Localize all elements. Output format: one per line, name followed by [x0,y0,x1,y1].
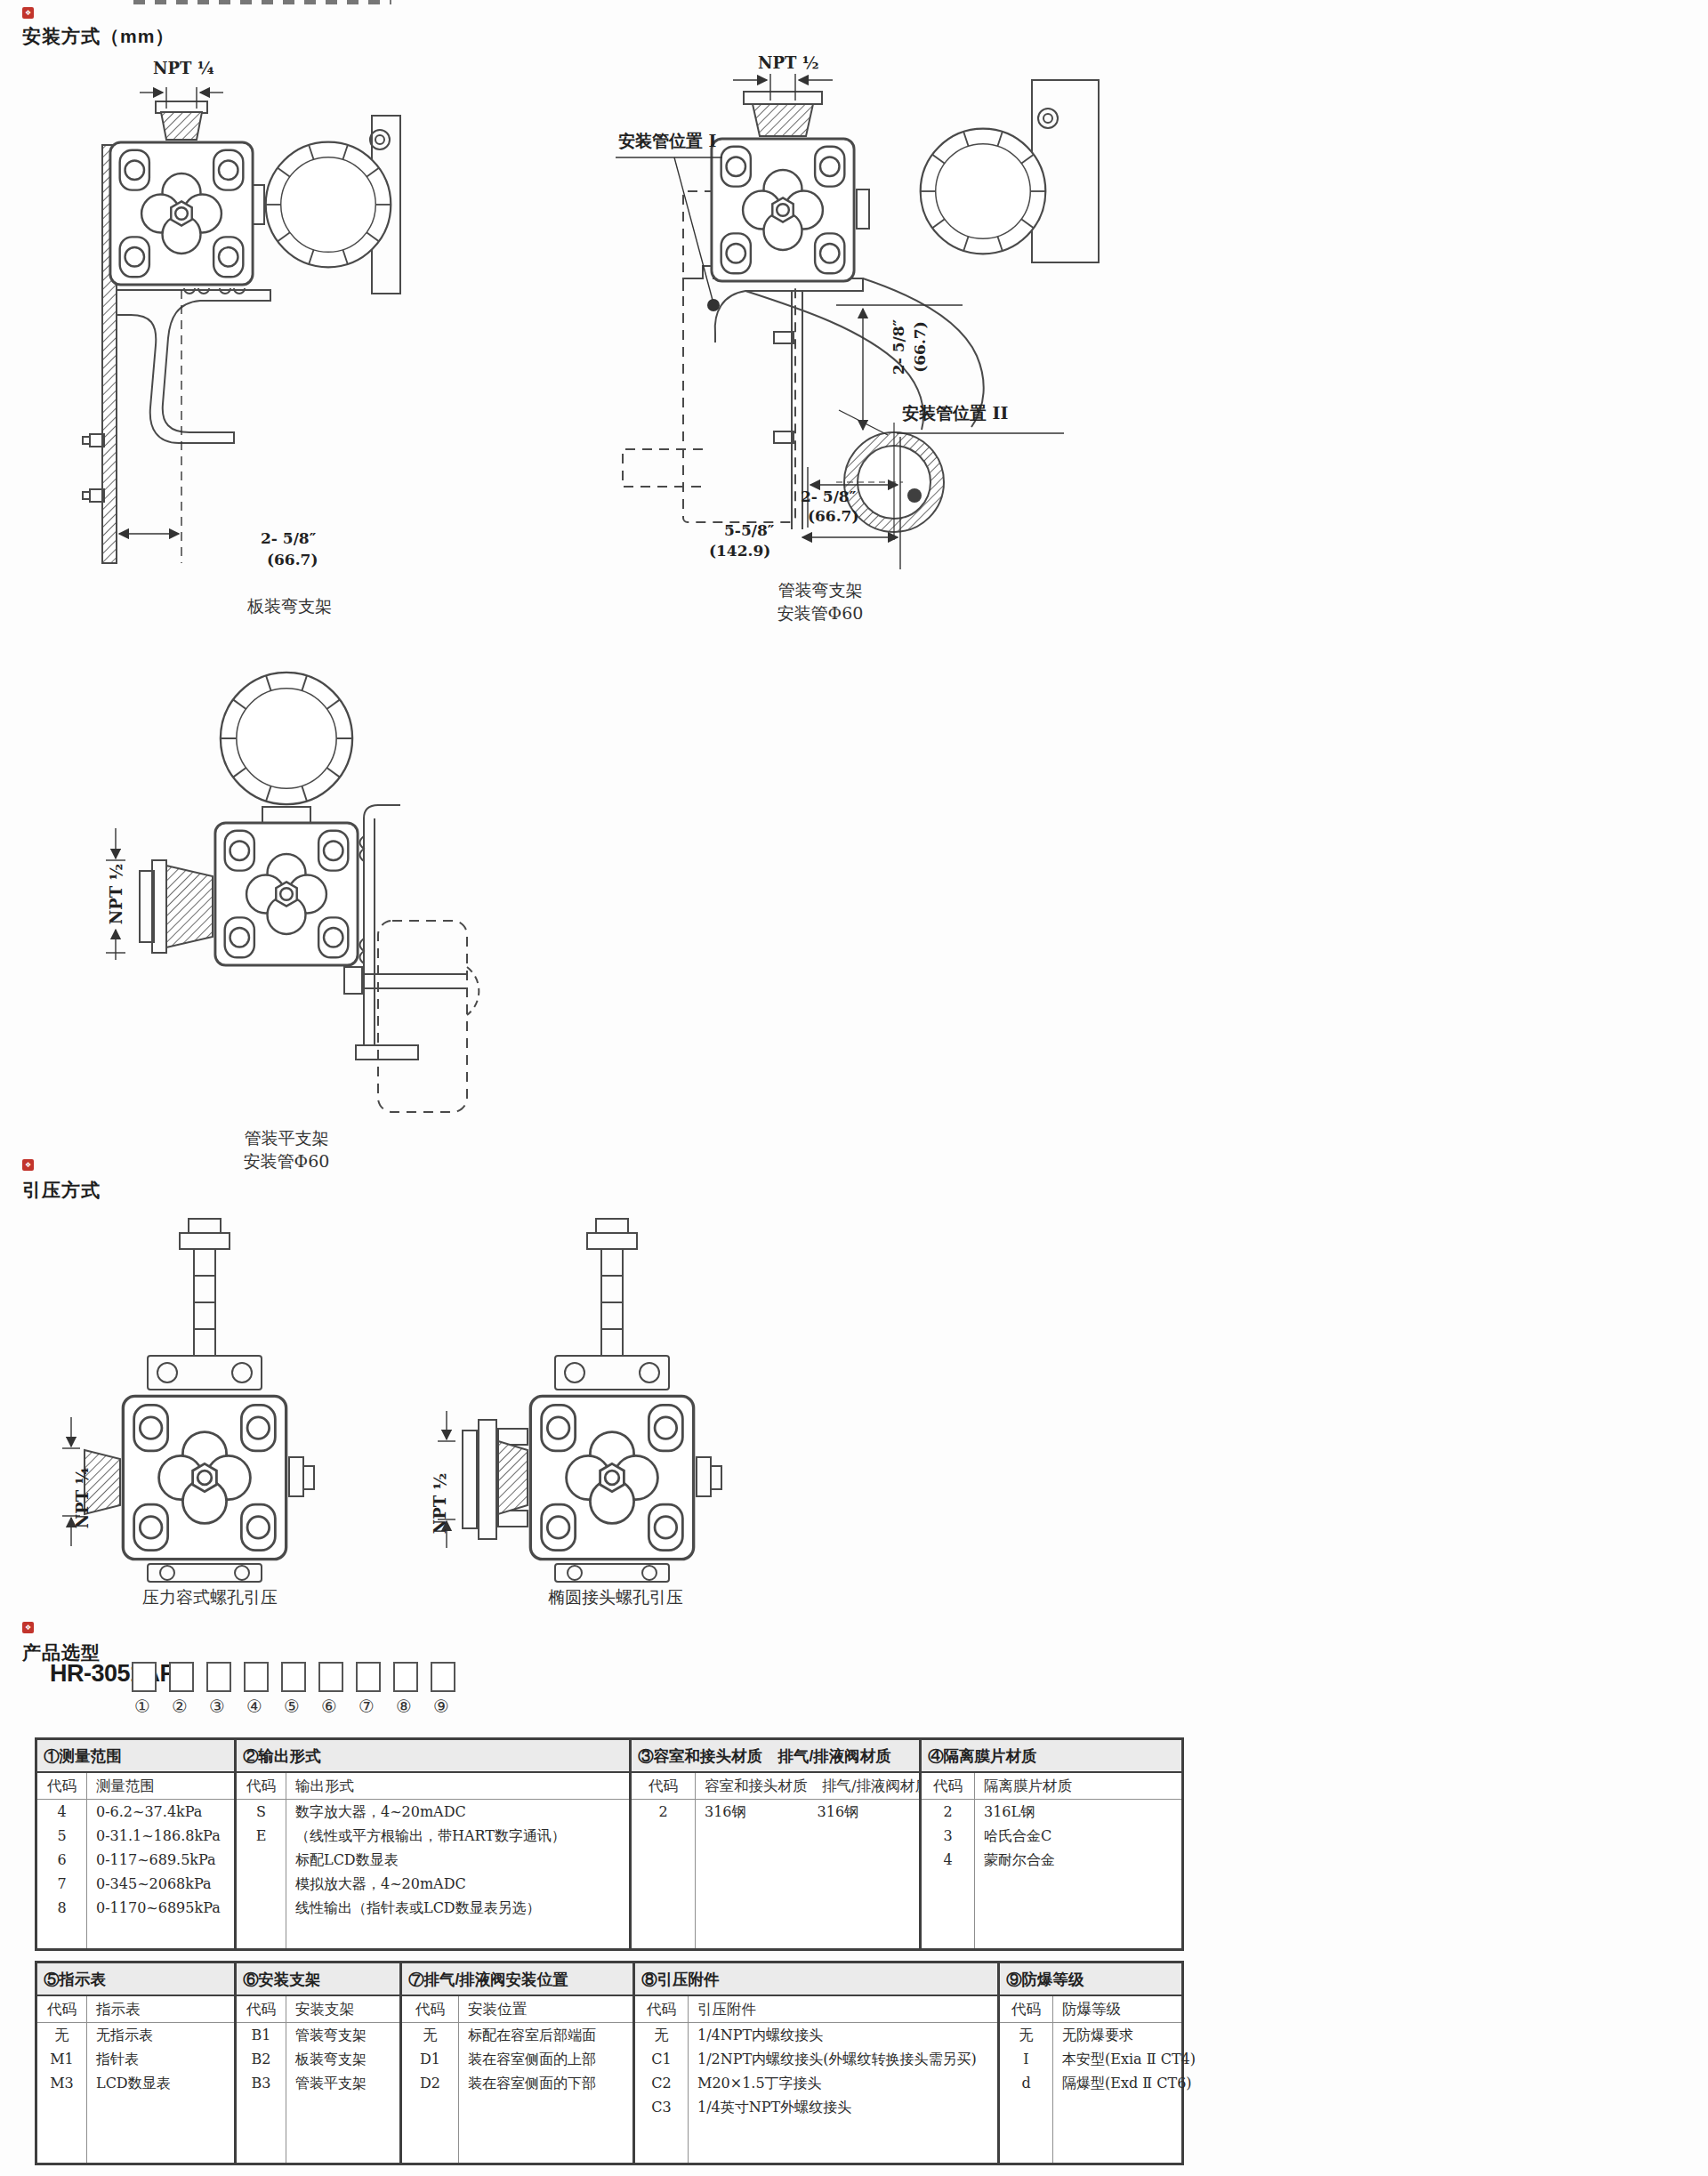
spec-section-title: ⑦排气/排液阀安装位置 [402,1963,632,1996]
section-marker-icon: ❖ [22,1622,34,1633]
value-cell: 线性输出（指针表或LCD数显表另选） [295,1896,629,1920]
code-cell: 无 [635,2023,688,2047]
value-cell: 隔爆型(Exd Ⅱ CT6) [1062,2071,1196,2095]
value-cell: 蒙耐尔合金 [984,1848,1181,1872]
value-cell: LCD数显表 [96,2071,234,2095]
drawing-pipe-flat-bracket [93,654,512,1125]
value-cell: 数字放大器，4~20mADC [295,1800,629,1824]
code-cell: 2 [632,1800,695,1824]
caption-line: 安装管Φ60 [758,601,882,625]
model-code-box-4 [244,1662,269,1692]
value-cell: （线性或平方根输出，带HART数字通讯） [295,1824,629,1848]
value-cell: 0-6.2~37.4kPa [96,1800,234,1824]
section-marker-icon: ❖ [22,7,34,19]
dim-vertical-label: 2- 5/8″ (66.7) [888,319,931,375]
spec-table-band-1: ①测量范围代码测量范围456780-6.2~37.4kPa0-31.1~186.… [35,1737,1184,1951]
dim-label: 2- 5/8″ [801,488,856,505]
spec-section-title: ⑤指示表 [37,1963,234,1996]
position-number: ⑦ [354,1696,379,1717]
npt-label: NPT ¼ [153,59,213,77]
model-code-box-1 [132,1662,157,1692]
value-column-header: 指示表 [87,1996,234,2022]
value-cell: 0-31.1~186.8kPa [96,1824,234,1848]
caption-line: 管装平支架 [229,1126,344,1149]
code-cell: C3 [635,2095,688,2119]
code-cell: 无 [402,2023,458,2047]
code-cell: B1 [237,2023,286,2047]
position-number: ② [167,1696,192,1717]
code-cells: B1B2B3 [237,2023,286,2163]
value-cell: 管装弯支架 [295,2023,399,2047]
pipe-position-2-label: 安装管位置 II [902,402,1008,425]
drawing-caption: 压力容式螺孔引压 [142,1585,278,1608]
value-cell: 板装弯支架 [295,2047,399,2071]
code-cells: 45678 [37,1800,87,1948]
code-cell: B2 [237,2047,286,2071]
value-column-header: 隔离膜片材质 [975,1773,1181,1799]
code-column-header: 代码 [37,1773,87,1799]
value-column-header: 安装支架 [286,1996,399,2022]
value-column-header: 测量范围 [87,1773,234,1799]
spec-section-title: ③容室和接头材质 排气/排液阀材质 [632,1740,919,1773]
code-cell: 4 [37,1800,86,1824]
spec-section-title: ②输出形式 [237,1740,629,1773]
code-cell: 8 [37,1896,86,1920]
drawing-chamber-tap [53,1217,356,1584]
value-cells: 数字放大器，4~20mADC（线性或平方根输出，带HART数字通讯）标配LCD数… [286,1800,629,1948]
code-column-header: 代码 [237,1773,286,1799]
value-cell: 模拟放大器，4~20mADC [295,1872,629,1896]
code-cell: C2 [635,2071,688,2095]
position-number: ① [130,1696,155,1717]
model-code-box-2 [169,1662,194,1692]
code-cells: 无D1D2 [402,2023,459,2163]
value-cell: 管装平支架 [295,2071,399,2095]
npt-label: NPT ½ [107,864,125,924]
value-cells: 无防爆要求本安型(Exia Ⅱ CT4)隔爆型(Exd Ⅱ CT6) [1053,2023,1196,2163]
value-cell: M20×1.5丁字接头 [697,2071,997,2095]
section-marker-icon: ❖ [22,1159,34,1171]
spec-section: ②输出形式代码输出形式SE数字放大器，4~20mADC（线性或平方根输出，带HA… [237,1740,632,1948]
code-cell: 2 [922,1800,974,1824]
value-cells: 无指示表指针表LCD数显表 [87,2023,234,2163]
spec-section: ⑦排气/排液阀安装位置代码安装位置无D1D2标配在容室后部端面装在容室侧面的上部… [402,1963,635,2163]
drawing-caption: 管装弯支架 安装管Φ60 [758,578,882,625]
code-cells: 无M1M3 [37,2023,87,2163]
value-cell: 1/4英寸NPT外螺纹接头 [697,2095,997,2119]
value-cell: 本安型(Exia Ⅱ CT4) [1062,2047,1196,2071]
position-number: ⑤ [279,1696,304,1717]
spec-section: ①测量范围代码测量范围456780-6.2~37.4kPa0-31.1~186.… [37,1740,237,1948]
spec-section-title: ①测量范围 [37,1740,234,1773]
position-number: ⑧ [391,1696,416,1717]
pipe-position-1-label: 安装管位置 I [618,130,717,153]
npt-label: NPT ½ [431,1473,449,1534]
value-cells: 管装弯支架板装弯支架管装平支架 [286,2023,399,2163]
model-code-box-8 [393,1662,418,1692]
value-cell: 哈氏合金C [984,1824,1181,1848]
code-cells: 无C1C2C3 [635,2023,689,2163]
caption-line: 管装弯支架 [758,578,882,601]
value-cell: 0-1170~6895kPa [96,1896,234,1920]
caption-line: 安装管Φ60 [229,1149,344,1173]
value-cells: 316L钢哈氏合金C蒙耐尔合金 [975,1800,1181,1948]
value-cells: 1/4NPT内螺纹接头1/2NPT内螺纹接头(外螺纹转换接头需另买)M20×1.… [689,2023,997,2163]
value-cells: 316钢 316钢 [696,1800,919,1948]
position-number: ④ [242,1696,267,1717]
code-cell: B3 [237,2071,286,2095]
value-cells: 标配在容室后部端面装在容室侧面的上部装在容室侧面的下部 [459,2023,632,2163]
drawing-caption: 管装平支架 安装管Φ60 [229,1126,344,1173]
code-column-header: 代码 [402,1996,459,2022]
value-column-header: 安装位置 [459,1996,632,2022]
spec-section: ⑤指示表代码指示表无M1M3无指示表指针表LCD数显表 [37,1963,237,2163]
clipped-previous-row [133,0,391,4]
code-cell: 3 [922,1824,974,1848]
value-cell: 标配在容室后部端面 [468,2023,632,2047]
code-cell: I [1000,2047,1052,2071]
code-column-header: 代码 [37,1996,87,2022]
model-code-box-5 [281,1662,306,1692]
code-cells: 无Id [1000,2023,1053,2163]
drawing-oval-tap [427,1217,765,1584]
code-cell: 6 [37,1848,86,1872]
model-code-box-9 [431,1662,455,1692]
value-cell: 0-345~2068kPa [96,1872,234,1896]
position-number: ⑨ [429,1696,454,1717]
dim-label-mm: (66.7) [909,319,931,375]
code-cell: 4 [922,1848,974,1872]
model-code-box-3 [206,1662,231,1692]
code-cell: D1 [402,2047,458,2071]
spec-section: ③容室和接头材质 排气/排液阀材质代码容室和接头材质 排气/排液阀材质2316钢… [632,1740,922,1948]
code-cells: 2 [632,1800,696,1948]
code-cell: S [237,1800,286,1824]
code-cell: D2 [402,2071,458,2095]
spec-section: ④隔离膜片材质代码隔离膜片材质234316L钢哈氏合金C蒙耐尔合金 [922,1740,1181,1948]
code-cell: E [237,1824,286,1848]
drawing-caption: 板装弯支架 [247,594,332,617]
value-column-header: 防爆等级 [1053,1996,1181,2022]
dim-label-mm: (66.7) [808,507,859,525]
code-cell: 7 [37,1872,86,1896]
drawing-caption: 椭圆接头螺孔引压 [548,1585,683,1608]
model-code-boxes: ①②③④⑤⑥⑦⑧⑨ [132,1662,594,1717]
code-cell: 无 [1000,2023,1052,2047]
value-column-header: 引压附件 [689,1996,997,2022]
spec-section-title: ⑨防爆等级 [1000,1963,1181,1996]
code-cell: C1 [635,2047,688,2071]
npt-label: NPT ½ [758,53,818,72]
value-cell: 装在容室侧面的上部 [468,2047,632,2071]
code-cells: 234 [922,1800,975,1948]
model-code-box-7 [356,1662,381,1692]
dim-label-mm: (66.7) [267,551,318,568]
value-cell: 指针表 [96,2047,234,2071]
dim-label: 2- 5/8″ [888,319,909,375]
code-cell: M3 [37,2071,86,2095]
value-cell: 1/4NPT内螺纹接头 [697,2023,997,2047]
value-cells: 0-6.2~37.4kPa0-31.1~186.8kPa0-117~689.5k… [87,1800,234,1948]
dim-label: 2- 5/8″ [261,529,316,547]
position-number: ③ [205,1696,230,1717]
dim-label: 5-5/8″ [724,521,774,539]
npt-label: NPT ¼ [73,1468,92,1528]
section-title-pressure-intro: 引压方式 [22,1178,101,1203]
code-cells: SE [237,1800,286,1948]
position-number: ⑥ [317,1696,342,1717]
spec-section: ⑧引压附件代码引压附件无C1C2C31/4NPT内螺纹接头1/2NPT内螺纹接头… [635,1963,1000,2163]
code-cell: 无 [37,2023,86,2047]
value-cell: 无指示表 [96,2023,234,2047]
spec-section-title: ⑧引压附件 [635,1963,997,1996]
code-column-header: 代码 [922,1773,975,1799]
datasheet-page: ❖ 安装方式（mm） NPT ¼ 2- 5/8″ (66.7) 板装弯支架 [0,0,1708,2176]
value-cell: 316钢 316钢 [705,1800,919,1824]
spec-section: ⑨防爆等级代码防爆等级无Id无防爆要求本安型(Exia Ⅱ CT4)隔爆型(Ex… [1000,1963,1181,2163]
code-column-header: 代码 [635,1996,689,2022]
spec-section-title: ⑥安装支架 [237,1963,399,1996]
value-cell: 标配LCD数显表 [295,1848,629,1872]
code-column-header: 代码 [632,1773,696,1799]
code-cell: 5 [37,1824,86,1848]
spec-section-title: ④隔离膜片材质 [922,1740,1181,1773]
value-cell: 无防爆要求 [1062,2023,1196,2047]
value-cell: 装在容室侧面的下部 [468,2071,632,2095]
section-title-mounting: 安装方式（mm） [22,24,174,49]
code-column-header: 代码 [1000,1996,1053,2022]
spec-table-band-2: ⑤指示表代码指示表无M1M3无指示表指针表LCD数显表⑥安装支架代码安装支架B1… [35,1961,1184,2165]
drawing-plate-bracket [85,52,485,585]
value-column-header: 容室和接头材质 排气/排液阀材质 [696,1773,919,1799]
value-column-header: 输出形式 [286,1773,629,1799]
model-code-box-6 [318,1662,343,1692]
spec-section: ⑥安装支架代码安装支架B1B2B3管装弯支架板装弯支架管装平支架 [237,1963,402,2163]
code-cell: d [1000,2071,1052,2095]
dim-label-mm: (142.9) [709,542,770,560]
value-cell: 0-117~689.5kPa [96,1848,234,1872]
value-cell: 1/2NPT内螺纹接头(外螺纹转换接头需另买) [697,2047,997,2071]
code-column-header: 代码 [237,1996,286,2022]
code-cell: M1 [37,2047,86,2071]
value-cell: 316L钢 [984,1800,1181,1824]
